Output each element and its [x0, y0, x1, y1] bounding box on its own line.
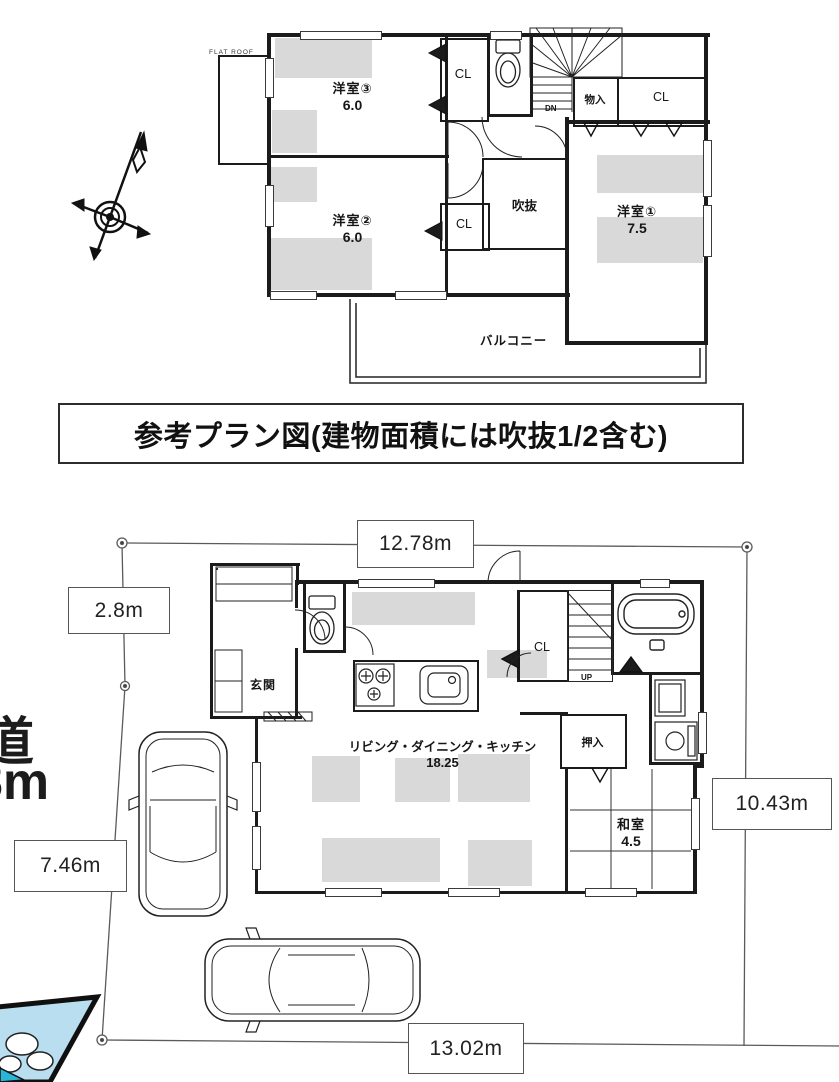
bathtub-icon	[618, 594, 694, 650]
window	[490, 31, 522, 40]
floorplan-page: FLAT ROOF 洋室③ 6.0 洋室② 6.0 洋室① 7.5 CL 物入 …	[0, 0, 839, 1082]
hatch-area	[275, 38, 372, 78]
wall-segment	[303, 650, 346, 653]
wall-segment	[255, 891, 572, 894]
window	[691, 798, 700, 850]
window	[703, 140, 712, 197]
window	[395, 291, 447, 300]
dim-box-left-upper: 2.8m	[68, 587, 170, 634]
window	[448, 888, 500, 897]
window	[358, 579, 435, 588]
wall-segment	[649, 762, 704, 765]
toilet-1f-icon	[309, 596, 335, 644]
stairs-up-label: UP	[581, 673, 592, 682]
window	[585, 888, 637, 897]
window	[252, 826, 261, 870]
hatch-area	[468, 840, 532, 886]
window	[265, 58, 274, 98]
wall-segment	[295, 583, 298, 608]
wall-segment	[693, 765, 704, 768]
wall-segment	[303, 583, 306, 653]
compass-icon	[72, 132, 150, 260]
wall-segment	[210, 563, 300, 566]
title-band: 参考プラン図(建物面積には吹抜1/2含む)	[58, 403, 744, 464]
stairs-dn-label: DN	[545, 104, 557, 113]
closet-box	[517, 590, 569, 682]
dim-box-left-lower: 7.46m	[14, 840, 127, 892]
hatch-area	[597, 155, 703, 193]
void-label: 吹抜	[482, 195, 567, 214]
window	[640, 579, 670, 588]
oshiire-label: 押入	[560, 734, 625, 750]
hatch-area	[352, 592, 475, 625]
closet-label-top: CL	[440, 66, 486, 81]
window	[325, 888, 382, 897]
wall-segment	[487, 114, 533, 117]
car-upper-icon	[129, 732, 237, 916]
window	[270, 291, 317, 300]
wall-segment	[649, 675, 652, 765]
wall-segment	[218, 163, 267, 165]
window	[703, 205, 712, 257]
wall-segment	[210, 563, 213, 719]
washbasin-icon	[655, 680, 697, 760]
closet-box	[353, 660, 479, 712]
window	[300, 31, 382, 40]
hatch-area	[268, 167, 317, 202]
blue-corner-graphic	[0, 997, 97, 1082]
window	[265, 185, 274, 227]
wall-segment	[267, 155, 449, 158]
window	[698, 712, 707, 754]
thin-outline	[567, 590, 613, 682]
balcony-label: バルコニー	[480, 330, 547, 349]
wall-segment	[343, 583, 346, 653]
hatch-area	[272, 110, 317, 153]
wall-segment	[218, 55, 220, 165]
road-width-label: 8m	[0, 752, 49, 812]
wall-segment	[295, 648, 298, 716]
closet-label-1f: CL	[519, 640, 565, 654]
room-label-youshitsu1: 洋室① 7.5	[572, 201, 702, 236]
dim-box-bottom: 13.02m	[408, 1023, 524, 1074]
flat-roof-label: FLAT ROOF	[209, 49, 254, 56]
hatch-area	[268, 238, 372, 290]
wall-segment	[565, 341, 708, 345]
thin-outline	[216, 568, 218, 570]
wall-segment	[530, 33, 533, 117]
wall-segment	[611, 672, 704, 675]
wall-segment	[565, 767, 568, 894]
window	[252, 762, 261, 812]
dim-box-top: 12.78m	[357, 520, 474, 568]
room-label-youshitsu3: 洋室③ 6.0	[300, 78, 405, 113]
dim-box-right: 10.43m	[712, 778, 832, 830]
closet-label-mid: CL	[440, 217, 488, 231]
ldk-label: リビング・ダイニング・キッチン 18.25	[335, 736, 550, 770]
hatch-area	[322, 838, 440, 882]
storage-label: 物入	[573, 92, 617, 107]
entrance-label: 玄関	[250, 676, 276, 693]
room-label-youshitsu2: 洋室② 6.0	[300, 210, 405, 245]
washitsu-label: 和室 4.5	[572, 814, 690, 849]
toilet-2f-icon	[496, 40, 520, 87]
car-lower-icon	[205, 928, 420, 1032]
closet-label-right: CL	[617, 90, 705, 104]
